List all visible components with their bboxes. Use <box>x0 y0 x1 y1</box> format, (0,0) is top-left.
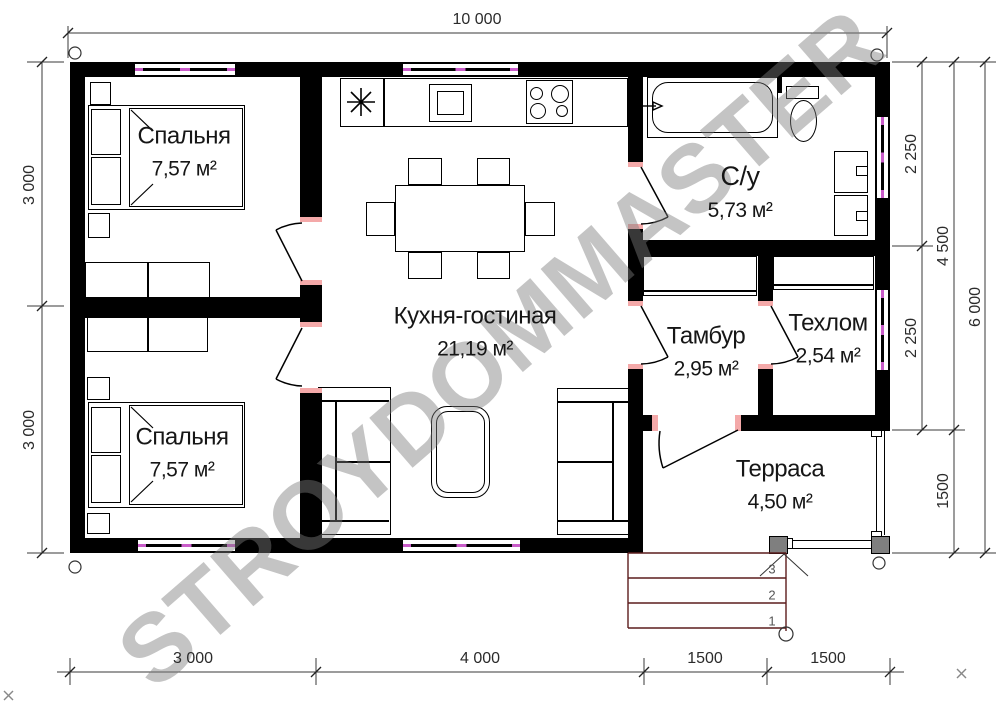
dim-bottom-tambour: 1500 <box>687 650 723 668</box>
room-label-tambour: Тамбур 2,95 м² <box>667 323 745 382</box>
jamb-bath-b <box>628 224 643 229</box>
pillow <box>91 109 121 155</box>
jamb-tehroom-b <box>758 364 773 369</box>
door-bedroom2 <box>276 328 302 386</box>
window-bathroom-right <box>875 117 890 198</box>
sofa-line <box>336 461 390 463</box>
jamb-entrance-a <box>652 415 658 431</box>
bathtub <box>652 82 773 133</box>
room-label-bathroom: С/у 5,73 м² <box>708 161 773 223</box>
wall-kitchen-right-3 <box>628 369 643 553</box>
wall-bathroom-bottom <box>628 240 890 256</box>
terrace-steps <box>628 553 786 631</box>
pillow <box>91 407 121 453</box>
window-bedroom1-top <box>135 62 235 77</box>
dim-left-lower: 3 000 <box>21 410 39 450</box>
room-label-tehroom: Техлом 2,54 м² <box>788 310 867 369</box>
wall-bottom-2 <box>235 538 403 553</box>
room-area: 7,57 м² <box>136 459 229 483</box>
room-area: 7,57 м² <box>138 158 231 182</box>
dim-right-bath: 2 250 <box>903 134 921 174</box>
step-number-2: 2 <box>768 588 775 603</box>
window-tehroom-right <box>875 290 890 370</box>
room-label-bedroom2: Спальня 7,57 м² <box>136 424 229 483</box>
wall-bath-partition <box>778 77 782 93</box>
dim-right-main: 4 500 <box>935 226 953 266</box>
window-kitchen-top <box>403 62 518 77</box>
room-label-bedroom1: Спальня 7,57 м² <box>138 123 231 182</box>
jamb-tehroom-a <box>758 301 773 306</box>
burner <box>530 103 546 119</box>
sofa-line <box>319 520 389 522</box>
door-entrance <box>659 430 738 468</box>
closet-line <box>774 284 873 286</box>
dim-right-hall: 2 250 <box>903 318 921 358</box>
jamb-bedroom1-a <box>300 217 322 222</box>
chair <box>477 252 510 279</box>
room-label-terrace: Терраса 4,50 м² <box>736 456 825 515</box>
chair <box>366 202 395 236</box>
room-area: 2,95 м² <box>667 358 745 382</box>
dining-table <box>395 185 525 252</box>
burner <box>551 85 569 103</box>
pillow <box>91 455 121 503</box>
oven-inner <box>437 91 464 115</box>
faucet-icon <box>856 166 868 176</box>
room-name: Спальня <box>136 424 229 452</box>
sofa-line <box>319 400 389 402</box>
wall-kitchen-right-1 <box>628 62 643 162</box>
dim-right-total: 6 000 <box>967 287 985 327</box>
door-bathroom <box>641 167 668 224</box>
window-bedroom2-bottom <box>138 538 235 553</box>
steps-leader-lines <box>760 554 808 576</box>
nightstand <box>87 377 110 400</box>
room-name: Тамбур <box>667 323 745 351</box>
pillow <box>91 157 121 205</box>
floor-plan: STROYDOMMASTER <box>0 0 1001 706</box>
toilet-bowl <box>790 100 817 142</box>
wall-bedroom-divider <box>70 297 322 318</box>
terrace-railing-right <box>876 431 885 535</box>
dim-bottom-kitchen: 4 000 <box>460 650 500 668</box>
terrace-railing-bottom <box>789 540 872 549</box>
wall-bottom-3 <box>520 538 643 553</box>
room-name: Техлом <box>788 310 867 338</box>
burner <box>556 105 568 117</box>
room-label-kitchen: Кухня-гостиная 21,19 м² <box>394 303 557 362</box>
room-area: 4,50 м² <box>736 491 825 515</box>
step-number-1: 1 <box>768 614 775 629</box>
sofa-line <box>558 520 628 522</box>
jamb-bath-a <box>628 162 643 167</box>
room-area: 2,54 м² <box>788 345 867 369</box>
wall-tambour-1 <box>758 256 773 301</box>
nightstand <box>87 513 110 534</box>
jamb-bedroom2-b <box>300 388 322 393</box>
sofa-line <box>558 461 612 463</box>
room-name: Терраса <box>736 456 825 484</box>
wardrobe-divider <box>147 315 149 351</box>
wardrobe-divider <box>147 263 149 297</box>
nightstand <box>90 82 111 105</box>
wall-terrace-2 <box>741 415 890 431</box>
room-area: 21,19 м² <box>394 338 557 362</box>
door-tambour <box>641 306 668 364</box>
dim-top-width: 10 000 <box>453 11 502 29</box>
burner <box>530 87 543 100</box>
wall-bedrooms-3 <box>300 393 322 538</box>
wall-terrace-1 <box>628 415 652 431</box>
door-bedroom1 <box>276 223 302 281</box>
sofa-line <box>612 401 614 520</box>
sofa-line <box>558 401 628 403</box>
step-number-3: 3 <box>768 562 775 577</box>
wall-right-1 <box>875 62 890 117</box>
dim-left-upper: 3 000 <box>21 165 39 205</box>
wall-bedrooms-1 <box>300 62 322 217</box>
chair <box>477 158 510 185</box>
room-name: Кухня-гостиная <box>394 303 557 331</box>
nightstand <box>88 213 110 238</box>
faucet-icon <box>856 211 868 221</box>
wall-top-3 <box>518 62 890 77</box>
room-area: 5,73 м² <box>708 199 773 223</box>
dim-bottom-terrace: 1500 <box>810 650 846 668</box>
chair <box>408 252 442 279</box>
chair <box>525 202 555 236</box>
jamb-tambour-a <box>628 301 643 306</box>
jamb-tambour-b <box>628 364 643 369</box>
window-kitchen-bottom <box>403 538 520 553</box>
coffee-table-inner <box>436 411 485 493</box>
toilet-tank <box>786 86 819 99</box>
chair <box>408 158 442 185</box>
counter-divider <box>383 79 385 126</box>
room-name: Спальня <box>138 123 231 151</box>
jamb-entrance-b <box>735 415 741 431</box>
terrace-post <box>871 536 890 554</box>
jamb-bedroom2-a <box>300 322 322 327</box>
closet-line <box>644 290 756 292</box>
room-name: С/у <box>708 161 773 192</box>
dim-bottom-bedrooms: 3 000 <box>173 650 213 668</box>
dim-right-terrace: 1500 <box>935 473 953 509</box>
jamb-bedroom1-b <box>300 280 322 285</box>
terrace-post <box>769 536 788 554</box>
corner-x-marks <box>4 669 966 700</box>
